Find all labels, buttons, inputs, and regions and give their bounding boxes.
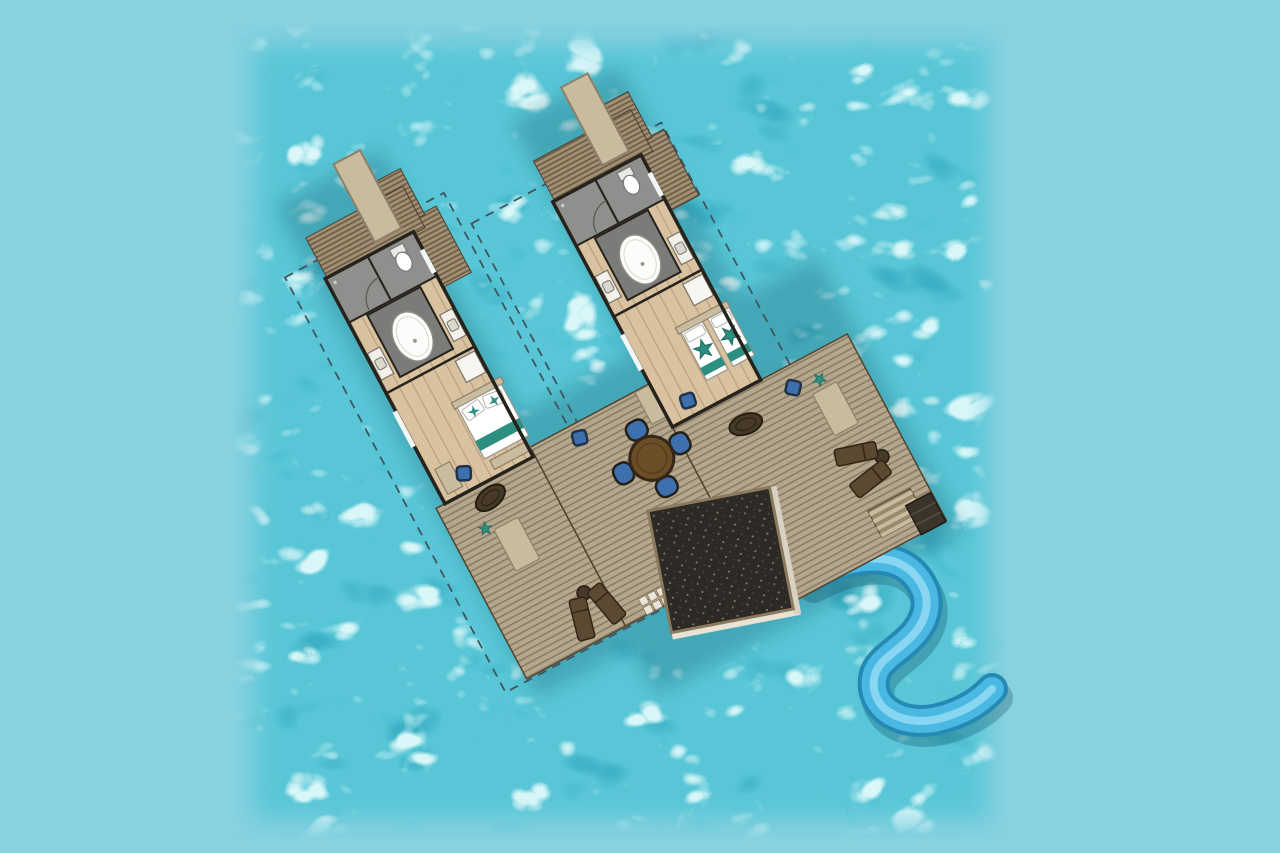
plunge-pool — [648, 486, 802, 640]
deck-cushion-2 — [785, 379, 802, 396]
floor-cushion — [679, 392, 697, 410]
floor-plan — [0, 0, 1280, 853]
floor-cushion — [456, 466, 471, 481]
deck-cushion-1 — [571, 429, 588, 446]
